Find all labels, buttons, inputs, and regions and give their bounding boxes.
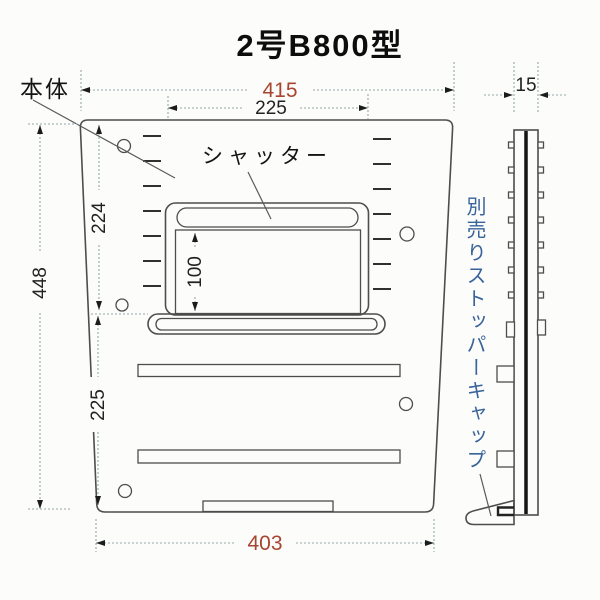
shutter-label: シャッター — [202, 140, 332, 170]
dim-total-height: 448 — [30, 267, 51, 299]
body-label: 本体 — [20, 70, 70, 104]
dim-bottom-width: 403 — [247, 532, 282, 555]
vent-slots-left — [143, 136, 161, 286]
dim-opening-height: 100 — [185, 256, 206, 288]
dim-shutter-width: 225 — [255, 98, 287, 119]
dim-lower-height: 225 — [88, 389, 109, 421]
page-title: 2号B800型 — [150, 20, 490, 65]
shutter-bottom-slot — [156, 319, 377, 331]
front-view — [80, 120, 452, 512]
vent-slots-right — [373, 139, 391, 289]
shutter-assembly — [148, 203, 385, 334]
body-leader-line — [33, 100, 175, 178]
lower-slots — [138, 365, 400, 512]
dim-side-thickness: 15 — [515, 75, 536, 96]
dim-upper-height: 224 — [89, 202, 110, 234]
technical-drawing: 415 225 224 100 448 225 403 15 — [0, 0, 600, 600]
diagram-canvas: 415 225 224 100 448 225 403 15 2号B800型 本… — [0, 0, 600, 600]
stopper-cap-label: 別売りストッパーキャップ — [460, 196, 489, 486]
